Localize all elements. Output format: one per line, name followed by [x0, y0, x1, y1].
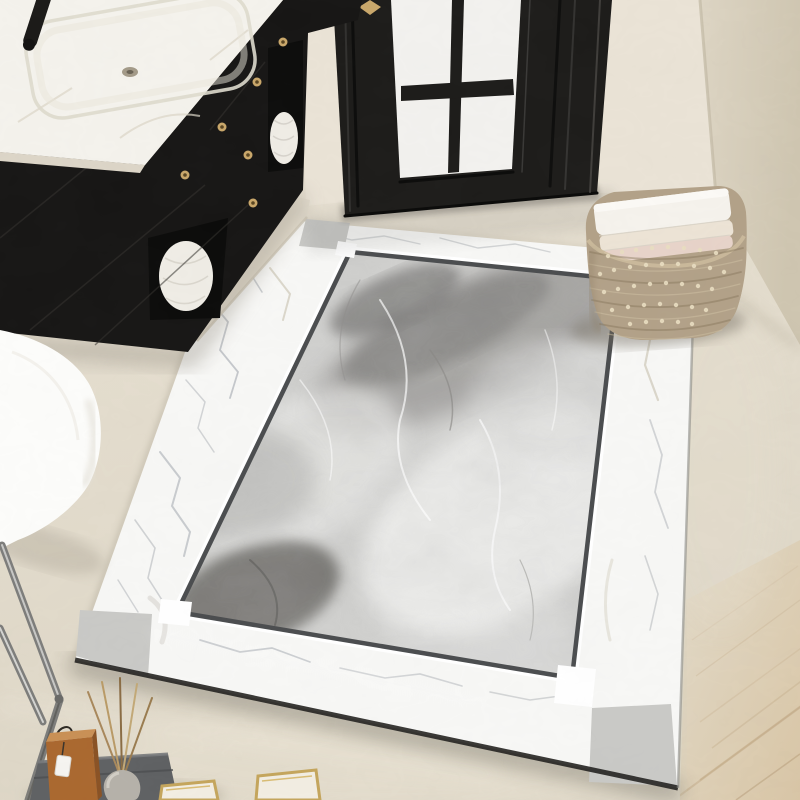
photo-grain: [0, 0, 800, 800]
scene-stage: [0, 0, 800, 800]
bathroom-rug-scene: [0, 0, 800, 800]
